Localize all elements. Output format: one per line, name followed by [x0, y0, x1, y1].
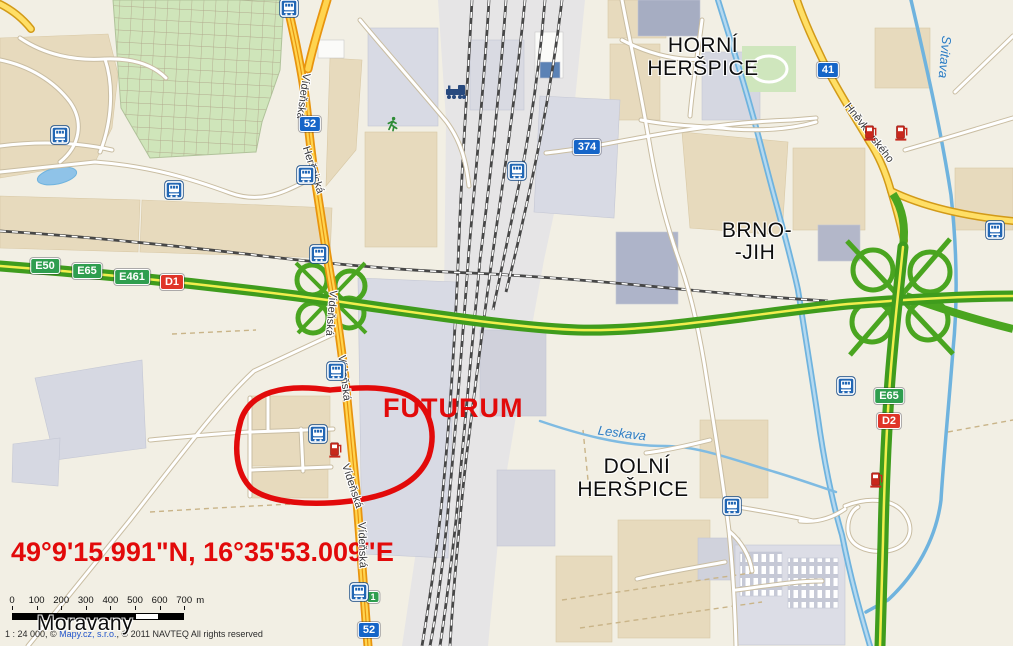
sports-field — [742, 46, 796, 92]
cemetery-area — [113, 0, 284, 158]
map-canvas — [0, 0, 1013, 646]
map-container[interactable]: FUTURUM 49°9'15.991"N, 16°35'53.009"E 01… — [0, 0, 1013, 646]
mapy-cz-link[interactable]: Mapy.cz, s.r.o. — [59, 629, 116, 639]
